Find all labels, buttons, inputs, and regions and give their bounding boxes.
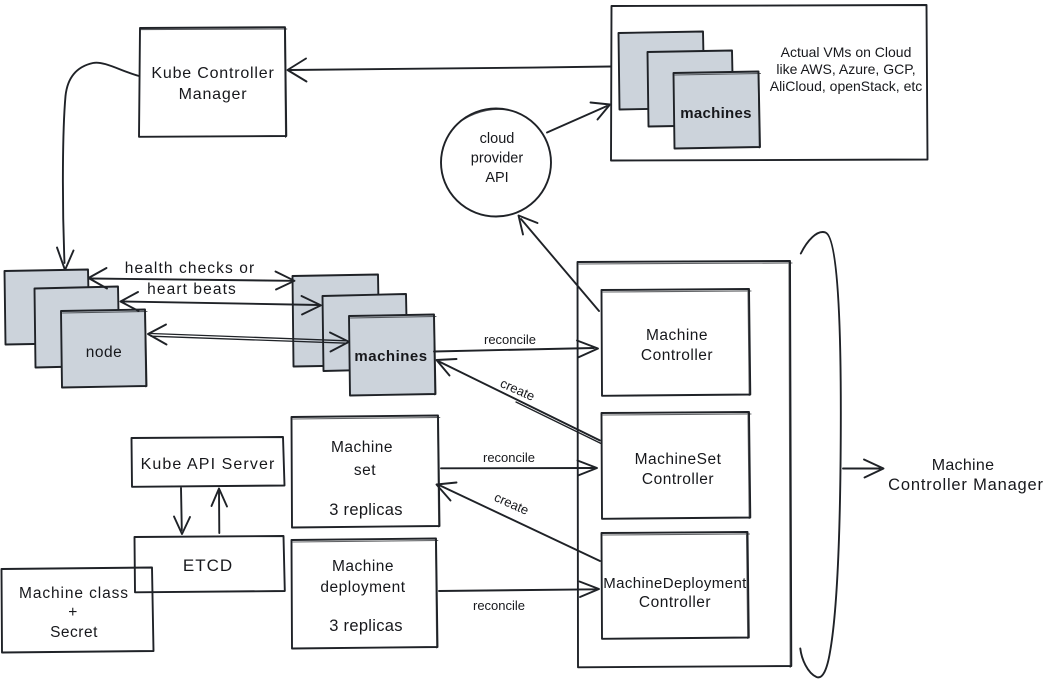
- svg-text:Controller: Controller: [641, 347, 713, 364]
- svg-text:3 replicas: 3 replicas: [329, 501, 403, 519]
- svg-text:Secret: Secret: [50, 624, 98, 641]
- svg-text:machines: machines: [680, 105, 752, 122]
- svg-text:reconcile: reconcile: [483, 450, 535, 465]
- svg-text:Controller: Controller: [639, 594, 711, 611]
- svg-text:Controller: Controller: [642, 471, 714, 488]
- svg-text:AliCloud, openStack, etc: AliCloud, openStack, etc: [770, 78, 923, 94]
- svg-text:Machine: Machine: [331, 439, 393, 456]
- svg-text:Actual VMs on Cloud: Actual VMs on Cloud: [781, 44, 912, 60]
- svg-text:reconcile: reconcile: [473, 598, 525, 613]
- svg-text:Controller Manager: Controller Manager: [888, 476, 1044, 494]
- svg-text:Manager: Manager: [179, 86, 248, 103]
- svg-text:3 replicas: 3 replicas: [329, 617, 403, 635]
- svg-text:machines: machines: [354, 348, 427, 365]
- svg-text:like AWS, Azure, GCP,: like AWS, Azure, GCP,: [776, 61, 915, 77]
- svg-text:deployment: deployment: [320, 579, 405, 596]
- svg-text:provider: provider: [471, 151, 524, 167]
- svg-text:heart beats: heart beats: [147, 281, 237, 298]
- svg-text:Kube Controller: Kube Controller: [151, 65, 274, 82]
- svg-text:health checks or: health checks or: [125, 260, 255, 277]
- svg-text:Kube API Server: Kube API Server: [141, 456, 276, 473]
- svg-text:+: +: [68, 604, 78, 621]
- svg-text:node: node: [86, 344, 122, 361]
- svg-text:ETCD: ETCD: [183, 556, 233, 575]
- svg-text:API: API: [485, 170, 508, 186]
- svg-text:reconcile: reconcile: [484, 332, 536, 347]
- svg-text:Machine: Machine: [332, 558, 394, 575]
- svg-text:MachineSet: MachineSet: [635, 451, 722, 468]
- svg-text:set: set: [354, 462, 376, 479]
- svg-text:Machine: Machine: [646, 327, 708, 344]
- svg-text:Machine: Machine: [932, 457, 995, 474]
- svg-text:cloud: cloud: [480, 131, 515, 147]
- svg-text:MachineDeployment: MachineDeployment: [603, 575, 747, 592]
- svg-text:Machine class: Machine class: [19, 585, 129, 602]
